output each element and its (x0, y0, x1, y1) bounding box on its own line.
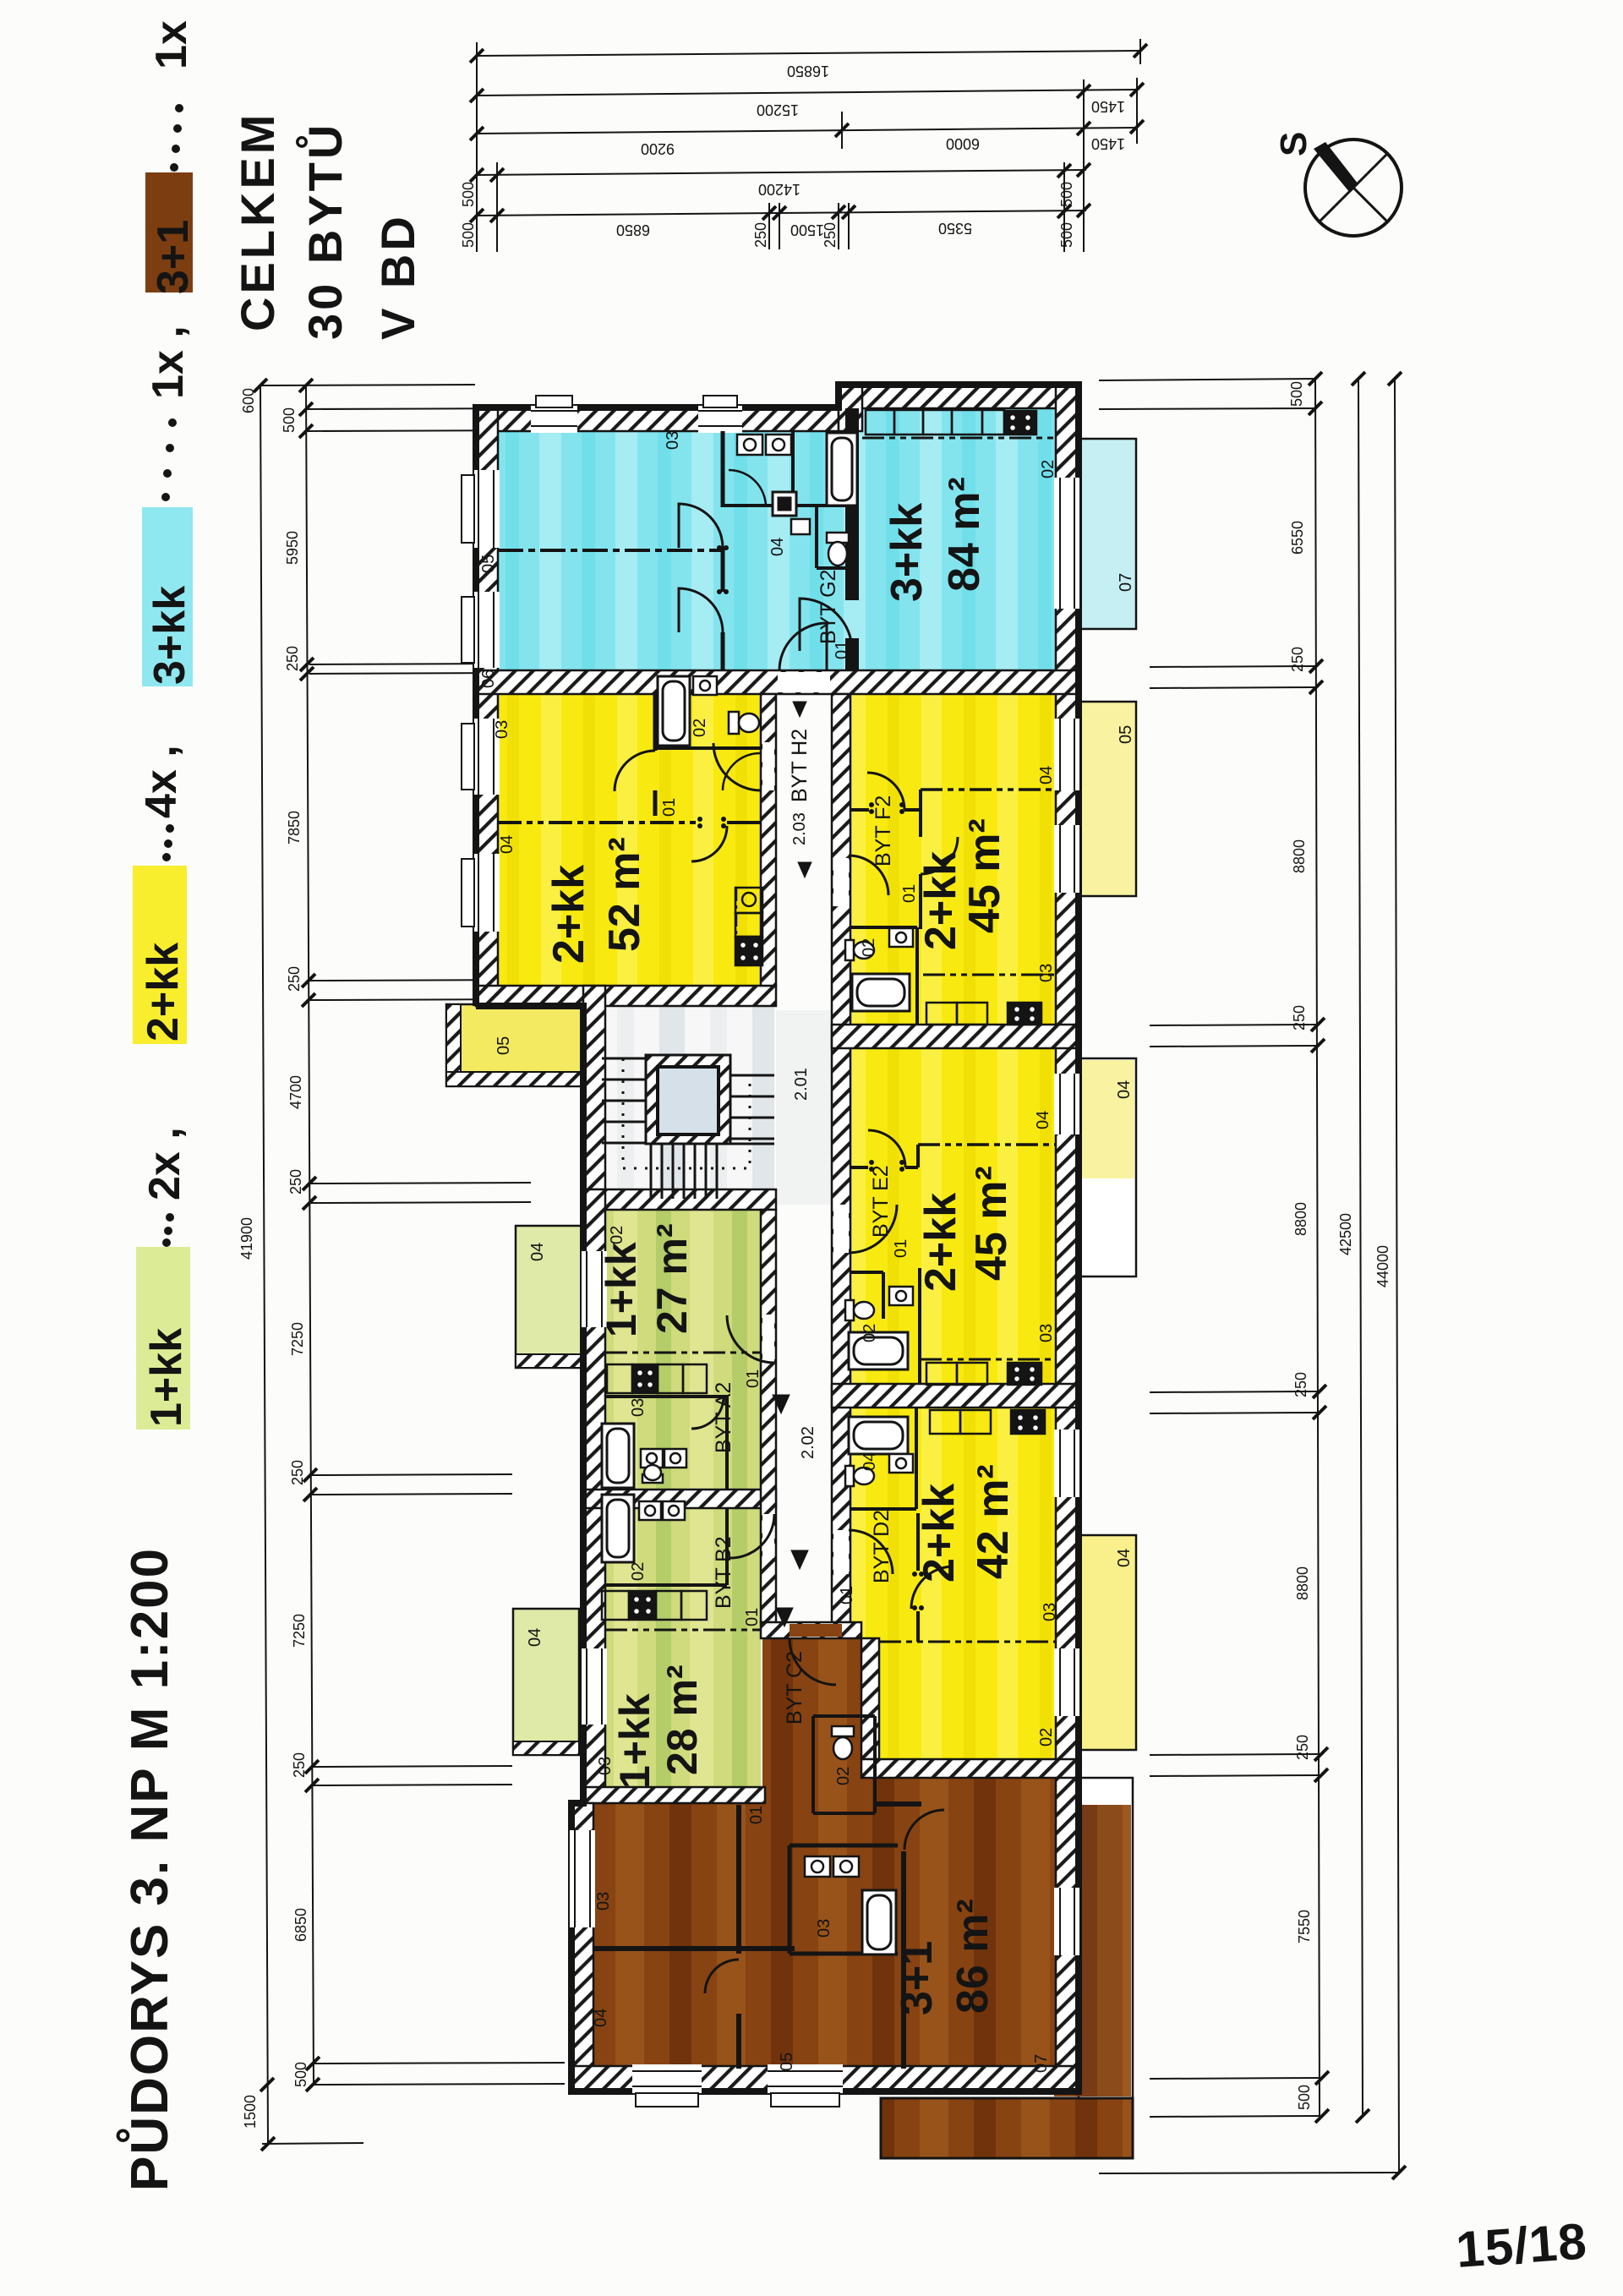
svg-text:6000: 6000 (946, 135, 980, 152)
svg-text:52 m²: 52 m² (600, 837, 649, 952)
svg-text:03: 03 (629, 1398, 648, 1417)
svg-text:1x ,: 1x , (144, 325, 193, 399)
svg-text:01: 01 (743, 1608, 762, 1626)
svg-text:03: 03 (493, 720, 511, 739)
svg-text:BYT F2: BYT F2 (872, 795, 895, 866)
svg-text:42500: 42500 (1337, 1213, 1354, 1255)
svg-text:5950: 5950 (284, 531, 301, 565)
svg-text:04: 04 (526, 1628, 544, 1647)
svg-text:03: 03 (596, 1757, 615, 1775)
svg-text:7250: 7250 (289, 1322, 306, 1356)
svg-text:500: 500 (1296, 2085, 1313, 2110)
svg-text:7250: 7250 (291, 1614, 308, 1648)
svg-text:250: 250 (1289, 647, 1306, 672)
svg-text:27 m²: 27 m² (648, 1223, 696, 1334)
svg-text:3+1: 3+1 (149, 220, 198, 294)
svg-text:250: 250 (1291, 1005, 1308, 1030)
svg-text:16850: 16850 (787, 63, 829, 79)
svg-text:6550: 6550 (1289, 521, 1306, 555)
svg-text:250: 250 (291, 1752, 308, 1778)
svg-text:2.01: 2.01 (792, 1068, 811, 1101)
svg-text:3+1: 3+1 (893, 1941, 942, 2015)
svg-text:03: 03 (815, 1919, 833, 1938)
svg-text:7850: 7850 (286, 811, 303, 845)
svg-text:05: 05 (495, 1036, 513, 1055)
svg-text:02: 02 (1039, 460, 1057, 478)
svg-text:28 m²: 28 m² (658, 1665, 706, 1775)
svg-text:BYT B2: BYT B2 (712, 1536, 735, 1609)
svg-text:07: 07 (1117, 573, 1135, 592)
svg-text:1500: 1500 (242, 2095, 259, 2129)
svg-text:45 m²: 45 m² (967, 1166, 1016, 1281)
svg-text:84 m²: 84 m² (940, 477, 989, 592)
svg-text:2+kk: 2+kk (139, 943, 188, 1041)
svg-text:15/18: 15/18 (1454, 2212, 1588, 2278)
svg-text:500: 500 (1288, 381, 1305, 407)
svg-text:03: 03 (1037, 1324, 1056, 1342)
svg-text:1+kk: 1+kk (142, 1328, 191, 1427)
svg-text:2+kk: 2+kk (916, 1193, 965, 1292)
svg-text:1+kk: 1+kk (611, 1693, 658, 1789)
svg-text:4x ,: 4x , (137, 745, 186, 818)
svg-text:04: 04 (1115, 1549, 1134, 1567)
svg-text:2+kk: 2+kk (916, 851, 965, 950)
svg-text:BYT H2: BYT H2 (788, 729, 811, 802)
svg-text:04: 04 (1115, 1080, 1134, 1099)
svg-text:500: 500 (460, 182, 477, 207)
svg-text:03: 03 (664, 431, 682, 450)
svg-text:S: S (1273, 132, 1314, 156)
svg-text:86 m²: 86 m² (948, 1899, 997, 2014)
svg-text:8800: 8800 (1291, 839, 1308, 873)
svg-text:02: 02 (860, 938, 878, 957)
svg-text:06: 06 (479, 670, 498, 688)
svg-text:1+kk: 1+kk (598, 1242, 645, 1337)
svg-text:250: 250 (1294, 1735, 1311, 1760)
svg-text:02: 02 (608, 1226, 626, 1244)
svg-text:2.02: 2.02 (799, 1426, 817, 1459)
svg-text:07: 07 (1032, 2054, 1051, 2073)
svg-text:04: 04 (1037, 766, 1056, 784)
svg-text:250: 250 (1292, 1372, 1309, 1397)
svg-text:4700: 4700 (287, 1075, 304, 1109)
svg-text:PŮDORYS 3. NP M 1:200: PŮDORYS 3. NP M 1:200 (117, 1547, 179, 2191)
svg-text:02: 02 (834, 1767, 853, 1785)
svg-text:500: 500 (292, 2062, 309, 2087)
svg-text:04: 04 (861, 1452, 879, 1471)
svg-text:1450: 1450 (1091, 135, 1125, 152)
svg-text:9200: 9200 (641, 140, 675, 157)
svg-text:01: 01 (833, 641, 851, 659)
svg-text:V BD: V BD (371, 213, 424, 340)
svg-text:01: 01 (838, 1586, 856, 1604)
svg-text:BYT A2: BYT A2 (712, 1382, 735, 1453)
svg-text:250: 250 (289, 1460, 306, 1485)
svg-text:02: 02 (691, 719, 709, 737)
svg-text:04: 04 (498, 835, 516, 854)
svg-text:01: 01 (660, 798, 679, 817)
svg-text:05: 05 (1117, 725, 1135, 744)
svg-text:01: 01 (892, 1239, 910, 1258)
svg-text:2.03: 2.03 (790, 812, 809, 845)
svg-text:04: 04 (768, 538, 787, 556)
svg-text:3+kk: 3+kk (883, 503, 932, 602)
svg-text:500: 500 (1058, 222, 1075, 248)
svg-text:44000: 44000 (1374, 1245, 1391, 1287)
svg-text:6850: 6850 (616, 221, 650, 238)
svg-text:02: 02 (629, 1562, 648, 1581)
svg-text:6850: 6850 (292, 1908, 309, 1942)
svg-text:BYT E2: BYT E2 (869, 1165, 893, 1238)
svg-text:03: 03 (594, 1892, 613, 1911)
svg-text:250: 250 (287, 1169, 304, 1194)
svg-text:42 m²: 42 m² (969, 1464, 1018, 1579)
svg-text:1500: 1500 (790, 221, 824, 238)
svg-text:14200: 14200 (758, 181, 801, 198)
svg-text:2x ,: 2x , (140, 1127, 189, 1200)
svg-text:500: 500 (1058, 182, 1075, 207)
svg-text:05: 05 (479, 555, 498, 573)
svg-text:04: 04 (592, 2009, 610, 2027)
svg-text:500: 500 (460, 222, 477, 248)
svg-text:7550: 7550 (1296, 1910, 1313, 1943)
svg-text:15200: 15200 (757, 101, 799, 118)
svg-text:3+kk: 3+kk (145, 586, 194, 685)
svg-text:01: 01 (747, 1806, 766, 1824)
svg-text:8800: 8800 (1292, 1202, 1309, 1236)
svg-text:250: 250 (752, 222, 769, 248)
svg-text:250: 250 (284, 646, 301, 671)
svg-text:02: 02 (1037, 1728, 1056, 1747)
svg-text:5350: 5350 (938, 220, 972, 237)
svg-text:41900: 41900 (238, 1217, 255, 1260)
svg-text:04: 04 (1034, 1111, 1052, 1129)
svg-text:2+kk: 2+kk (544, 865, 593, 964)
svg-text:CELKEM: CELKEM (231, 112, 284, 331)
svg-text:03: 03 (1037, 964, 1056, 982)
svg-text:250: 250 (286, 966, 303, 992)
svg-text:1x: 1x (147, 20, 196, 69)
svg-text:BYT G2: BYT G2 (817, 570, 840, 644)
svg-text:500: 500 (281, 407, 298, 433)
svg-text:BYT D2: BYT D2 (870, 1510, 893, 1583)
svg-text:600: 600 (240, 388, 257, 413)
svg-text:02: 02 (861, 1324, 879, 1342)
svg-text:01: 01 (744, 1369, 762, 1388)
svg-text:01: 01 (900, 884, 919, 903)
svg-text:05: 05 (778, 2053, 796, 2071)
svg-text:250: 250 (822, 222, 839, 248)
svg-text:1450: 1450 (1091, 98, 1125, 115)
svg-text:30 BYTŮ: 30 BYTŮ (296, 122, 352, 340)
svg-text:BYT C2: BYT C2 (783, 1651, 806, 1725)
svg-text:45 m²: 45 m² (960, 818, 1009, 933)
svg-text:2+kk: 2+kk (915, 1484, 964, 1583)
svg-text:04: 04 (528, 1243, 547, 1261)
svg-text:8800: 8800 (1294, 1566, 1311, 1600)
svg-text:03: 03 (1041, 1603, 1059, 1621)
